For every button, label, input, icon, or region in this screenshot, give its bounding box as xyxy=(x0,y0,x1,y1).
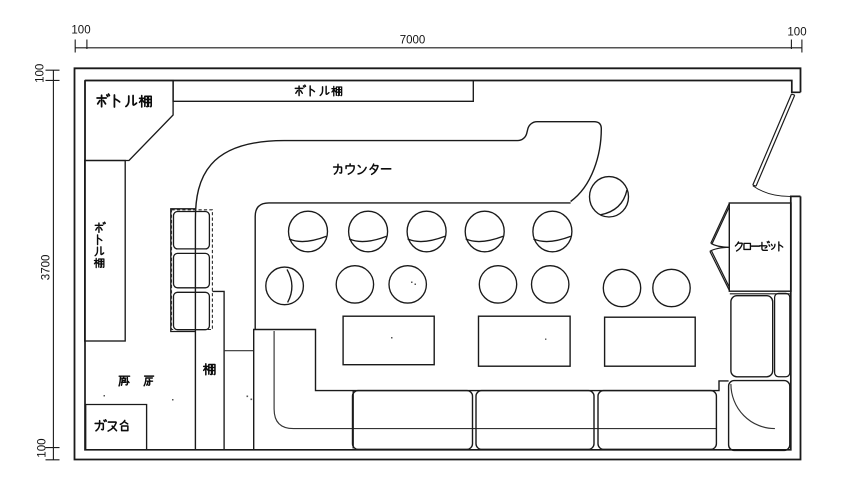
svg-text:3700: 3700 xyxy=(41,255,53,281)
svg-text:100: 100 xyxy=(34,64,46,83)
svg-text:100: 100 xyxy=(37,439,49,458)
svg-text:7000: 7000 xyxy=(400,35,426,47)
svg-text:100: 100 xyxy=(787,27,806,39)
svg-text:100: 100 xyxy=(71,25,90,37)
